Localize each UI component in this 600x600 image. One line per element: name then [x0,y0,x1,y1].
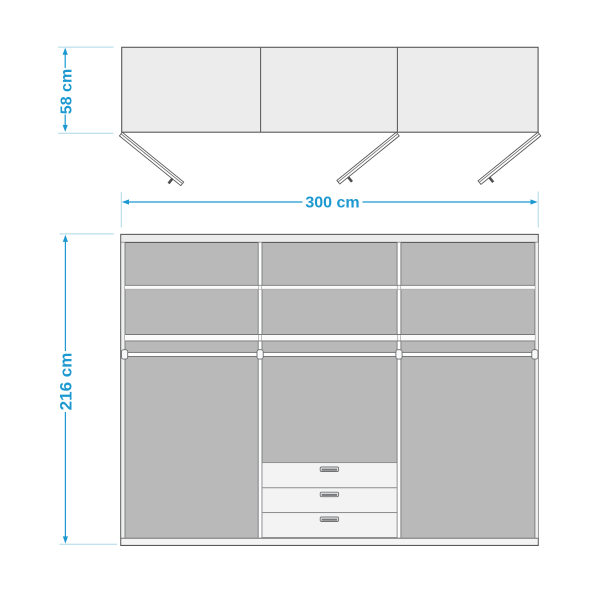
svg-text:216 cm: 216 cm [57,353,76,411]
svg-text:300 cm: 300 cm [305,195,359,212]
svg-text:58 cm: 58 cm [58,69,75,114]
